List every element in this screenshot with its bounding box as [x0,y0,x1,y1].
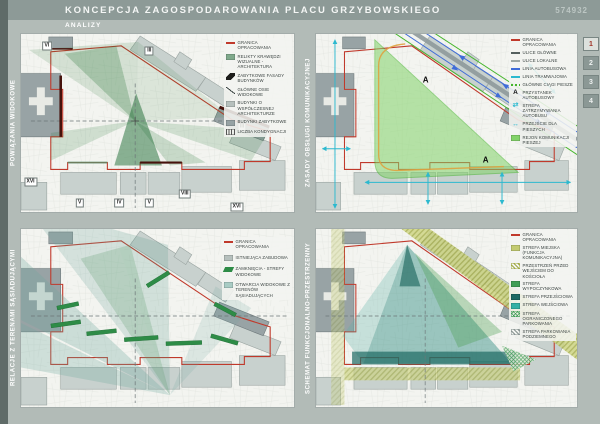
legend-label: REJON KOMUNIKACJI PIESZEJ [523,135,575,146]
legend-visual-links: GRANICA OPRACOWANIARELIKTY KRAWĘDZI WIZU… [224,38,292,137]
legend-label: STREFA PRZEJŚCIOWA [523,294,573,299]
legend-label: ULICE GŁÓWNE [523,50,557,55]
arrow-swatch-icon: ⇄ [511,103,520,109]
square-swatch-icon [226,101,235,107]
legend-label: GRANICA OPRACOWANIA [523,232,575,243]
legend-label: GRANICA OPRACOWANIA [236,239,291,250]
legend-item: ISTNIEJĄCA ZABUDOWA [224,255,290,262]
analysis-map-transport: GRANICA OPRACOWANIAULICE GŁÓWNEULICE LOK… [315,33,578,213]
legend-item: STREFA WYPOCZYNKOWA [511,281,574,292]
legend-item: ULICE GŁÓWNE [511,50,574,55]
legend-label: RELIKTY KRAWĘDZI WIZUALNE - ARCHITEKTURA [238,54,291,70]
legend-item: GRANICA OPRACOWANIA [226,40,290,51]
line-swatch-icon [226,42,235,44]
legend-item: ↔PRZEJŚCIE DLA PIESZYCH [511,121,574,132]
panel-title-functional-scheme: SCHEMAT FUNKCJONALNO-PRZESTRZENNY [303,228,314,408]
wedge-swatch-icon [226,73,235,80]
legend-label: LINIA TRAMWAJOWA [523,74,567,79]
legend-label: STREFA OGRANICZONEGO PARKOWANIA [523,311,575,327]
legend-item: ZABYTKOWE FASADY BUDYNKÓW [226,73,290,84]
title-bar: KONCEPCJA ZAGOSPODAROWANIA PLACU GRZYBOW… [8,0,600,20]
legend-item: ⇄STREFA ZATRZYMYWANIA AUTOBUSU [511,103,574,119]
legend-label: BUDYNKI ZABYTKOWE [238,119,287,124]
legend-item: BUDYNKI ZABYTKOWE [226,119,290,126]
legend-label: STREFA WYPOCZYNKOWA [523,281,575,292]
legend-item: STREFA PARKOWANIA PODZIEMNEGO [511,329,574,340]
hatch-swatch-icon [511,329,520,335]
bar-swatch-icon [223,267,234,272]
map-label-III: III [145,46,154,55]
line-swatch-icon [511,234,520,236]
square-swatch-icon [224,255,233,261]
square-swatch-icon [226,54,235,60]
axis-swatch-icon [226,87,235,94]
cross-swatch-icon [511,311,520,317]
legend-label: ZAMKNIĘCIA - STREFY WIDOKOWE [236,266,291,277]
legend-item: PRZESTRZEŃ PRZED WEJŚCIEM DO KOŚCIOŁA [511,263,574,279]
line-swatch-icon [511,68,520,70]
line-swatch-icon [511,39,520,41]
analysis-map-functional-scheme: GRANICA OPRACOWANIASTREFA MIEJSKA (FUNKC… [315,228,578,408]
legend-label: LICZBA KONDYGNACJI [238,129,287,134]
legend-label: PRZYSTANEK AUTOBUSOWY [523,90,575,101]
sheet-tabs: 1234 [583,37,599,108]
presentation-board: KONCEPCJA ZAGOSPODAROWANIA PLACU GRZYBOW… [0,0,600,424]
arrow-swatch-icon: ↔ [511,122,520,128]
legend-adjacent-areas: GRANICA OPRACOWANIAISTNIEJĄCA ZABUDOWAZA… [222,237,292,300]
legend-label: LINIA AUTOBUSOWA [523,66,567,71]
legend-item: STREFA OGRANICZONEGO PARKOWANIA [511,311,574,327]
map-label-A: A [481,157,490,164]
legend-label: ULICE LOKALNE [523,58,558,63]
legend-item: LICZBA KONDYGNACJI [226,129,290,136]
sheet-tab-2[interactable]: 2 [583,56,599,70]
square-swatch-icon [226,120,235,126]
legend-item: STREFA WEJŚCIOWA [511,302,574,309]
sheet-tab-3[interactable]: 3 [583,75,599,89]
map-label-XVI: XVI [24,177,37,186]
map-label-A: A [421,77,430,84]
legend-label: STREFA ZATRZYMYWANIA AUTOBUSU [523,103,575,119]
legend-label: GRANICA OPRACOWANIA [523,37,575,48]
legend-functional-scheme: GRANICA OPRACOWANIASTREFA MIEJSKA (FUNKC… [509,230,576,341]
sheet-tab-1[interactable]: 1 [583,37,599,51]
square-swatch-icon [511,294,520,300]
legend-label: PRZEJŚCIE DLA PIESZYCH [523,121,575,132]
panel-title-transport: ZASADY OBSŁUGI KOMUNIKACYJNEJ [303,33,314,213]
legend-item: GŁÓWNE OSIE WIDOKOWE [226,87,290,98]
legend-item: GRANICA OPRACOWANIA [224,239,290,250]
legend-label: PRZESTRZEŃ PRZED WEJŚCIEM DO KOŚCIOŁA [523,263,575,279]
panel-title-adjacent-areas: RELACJE Z TERENAMI SĄSIADUJĄCYMI [8,228,19,408]
legend-label: GŁÓWNE OSIE WIDOKOWE [238,87,291,98]
sheet-number: 574932 [555,6,588,15]
square-swatch-icon [224,282,233,288]
legend-item: ULICE LOKALNE [511,58,574,63]
map-label-VIII: VIII [179,190,192,199]
map-label-VI: VI [42,41,52,50]
legend-item: BUDYNKI O WSPÓŁCZESNEJ ARCHITEKTURZE [226,100,290,116]
map-label-V: V [145,199,153,208]
legend-label: GRANICA OPRACOWANIA [238,40,291,51]
sheet-tab-4[interactable]: 4 [583,94,599,108]
square-swatch-icon [511,281,520,287]
map-label-IV: IV [114,199,124,208]
legend-item: GŁÓWNE CIĄGI PIESZE [511,82,574,87]
legend-transport: GRANICA OPRACOWANIAULICE GŁÓWNEULICE LOK… [509,35,576,147]
floors-swatch-icon [226,129,235,135]
legend-item: STREFA PRZEJŚCIOWA [511,294,574,301]
map-label-XVI: XVI [230,202,243,211]
legend-label: OTWARCIA WIDOKOWE Z TERENÓW SĄSIADUJĄCYC… [236,282,291,298]
legend-item: APRZYSTANEK AUTOBUSOWY [511,90,574,101]
board-title: KONCEPCJA ZAGOSPODAROWANIA PLACU GRZYBOW… [65,5,441,16]
square-swatch-icon [511,135,520,141]
legend-item: LINIA AUTOBUSOWA [511,66,574,71]
analysis-map-visual-links: GRANICA OPRACOWANIARELIKTY KRAWĘDZI WIZU… [20,33,295,213]
legend-label: BUDYNKI O WSPÓŁCZESNEJ ARCHITEKTURZE [238,100,291,116]
line-swatch-icon [511,76,520,78]
line-swatch-icon [511,60,520,62]
legend-label: STREFA WEJŚCIOWA [523,302,569,307]
legend-label: STREFA MIEJSKA (FUNKCJA KOMUNIKACYJNA) [523,245,575,261]
legend-item: RELIKTY KRAWĘDZI WIZUALNE - ARCHITEKTURA [226,54,290,70]
analysis-map-adjacent-areas: GRANICA OPRACOWANIAISTNIEJĄCA ZABUDOWAZA… [20,228,295,408]
legend-item: STREFA MIEJSKA (FUNKCJA KOMUNIKACYJNA) [511,245,574,261]
hatch-swatch-icon [511,263,520,269]
legend-label: ISTNIEJĄCA ZABUDOWA [236,255,288,260]
legend-item: OTWARCIA WIDOKOWE Z TERENÓW SĄSIADUJĄCYC… [224,282,290,298]
panel-title-visual-links: POWIĄZANIA WIDOKOWE [8,33,19,213]
line-swatch-icon [224,241,233,243]
square-swatch-icon [511,303,520,309]
map-label-V: V [76,199,84,208]
legend-item: LINIA TRAMWAJOWA [511,74,574,79]
legend-item: GRANICA OPRACOWANIA [511,37,574,48]
legend-item: REJON KOMUNIKACJI PIESZEJ [511,135,574,146]
legend-label: STREFA PARKOWANIA PODZIEMNEGO [523,329,575,340]
letter-swatch-icon: A [511,90,520,96]
legend-item: GRANICA OPRACOWANIA [511,232,574,243]
dash-swatch-icon [511,84,520,86]
legend-item: ZAMKNIĘCIA - STREFY WIDOKOWE [224,266,290,277]
line-swatch-icon [511,52,520,54]
legend-label: ZABYTKOWE FASADY BUDYNKÓW [238,73,291,84]
board-subtitle: ANALIZY [65,22,102,29]
square-swatch-icon [511,245,520,251]
legend-label: GŁÓWNE CIĄGI PIESZE [523,82,573,87]
left-edge-bar [0,0,8,424]
